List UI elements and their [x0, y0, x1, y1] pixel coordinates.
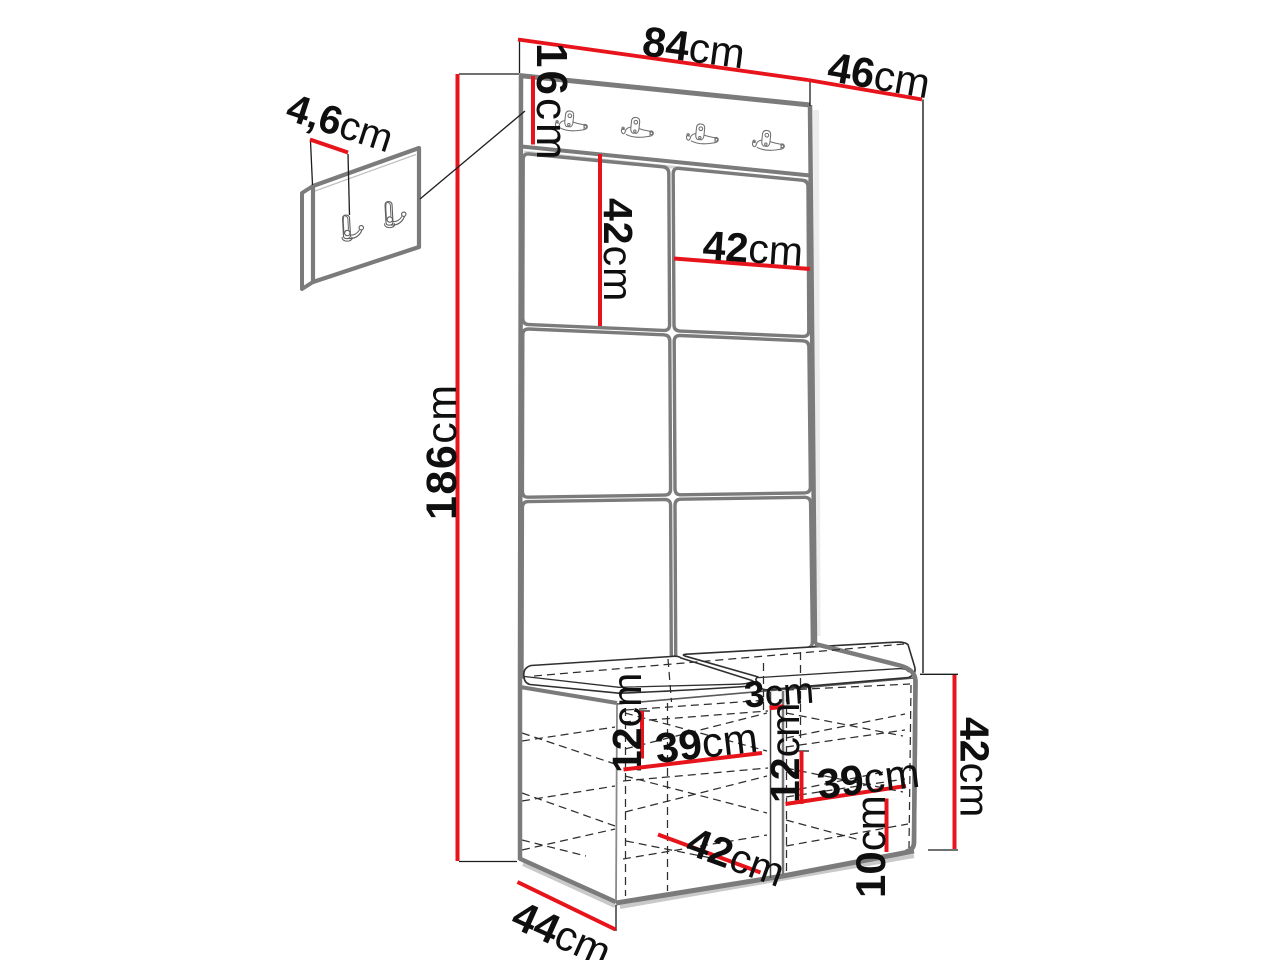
svg-text:10cm: 10cm — [847, 795, 894, 898]
svg-text:12cm: 12cm — [604, 673, 650, 773]
svg-text:186cm: 186cm — [418, 383, 466, 520]
svg-text:42cm: 42cm — [952, 717, 998, 817]
svg-text:42cm: 42cm — [701, 222, 804, 275]
svg-text:16cm: 16cm — [527, 43, 576, 163]
svg-text:12cm: 12cm — [762, 703, 808, 803]
svg-text:42cm: 42cm — [595, 198, 641, 302]
